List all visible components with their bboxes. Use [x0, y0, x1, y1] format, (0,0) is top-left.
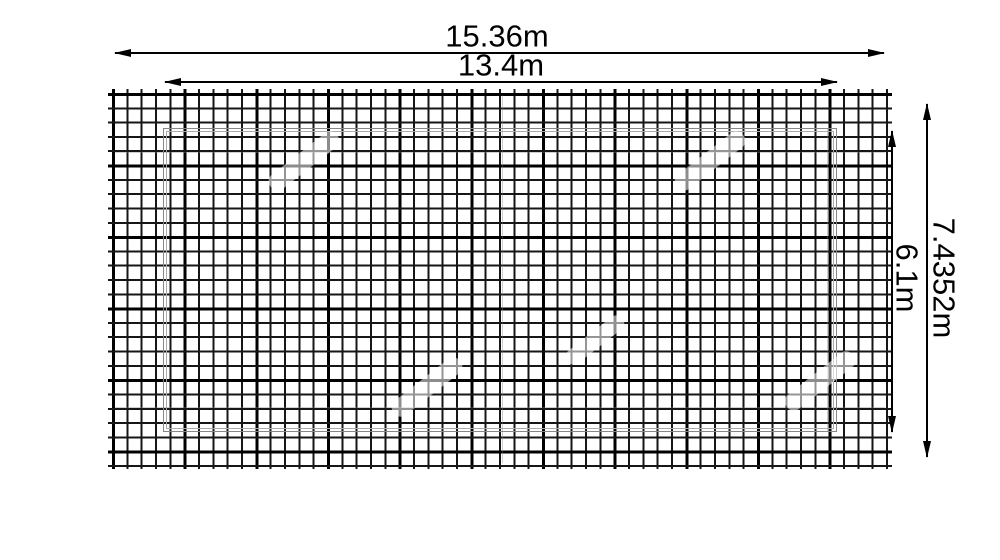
- arrowhead-right-icon: [868, 49, 885, 57]
- watermark-line: [115, 407, 885, 408]
- arrowhead-right-icon: [821, 78, 838, 86]
- arrowhead-up-icon: [888, 130, 896, 147]
- inner-height-label: 6.1m: [892, 244, 923, 313]
- arrowhead-left-icon: [114, 49, 131, 57]
- arrowhead-left-icon: [164, 78, 181, 86]
- watermark-line: [115, 152, 885, 153]
- arrowhead-down-icon: [888, 416, 896, 433]
- outer-height-label: 7.4352m: [929, 218, 960, 339]
- arrowhead-down-icon: [923, 441, 931, 458]
- diagram-canvas: 15.36m 13.4m 6.1m 7.4352m: [0, 0, 1000, 560]
- inner-width-label: 13.4m: [458, 50, 544, 81]
- screen-area-outline-inner: [166, 131, 834, 429]
- arrowhead-up-icon: [923, 103, 931, 120]
